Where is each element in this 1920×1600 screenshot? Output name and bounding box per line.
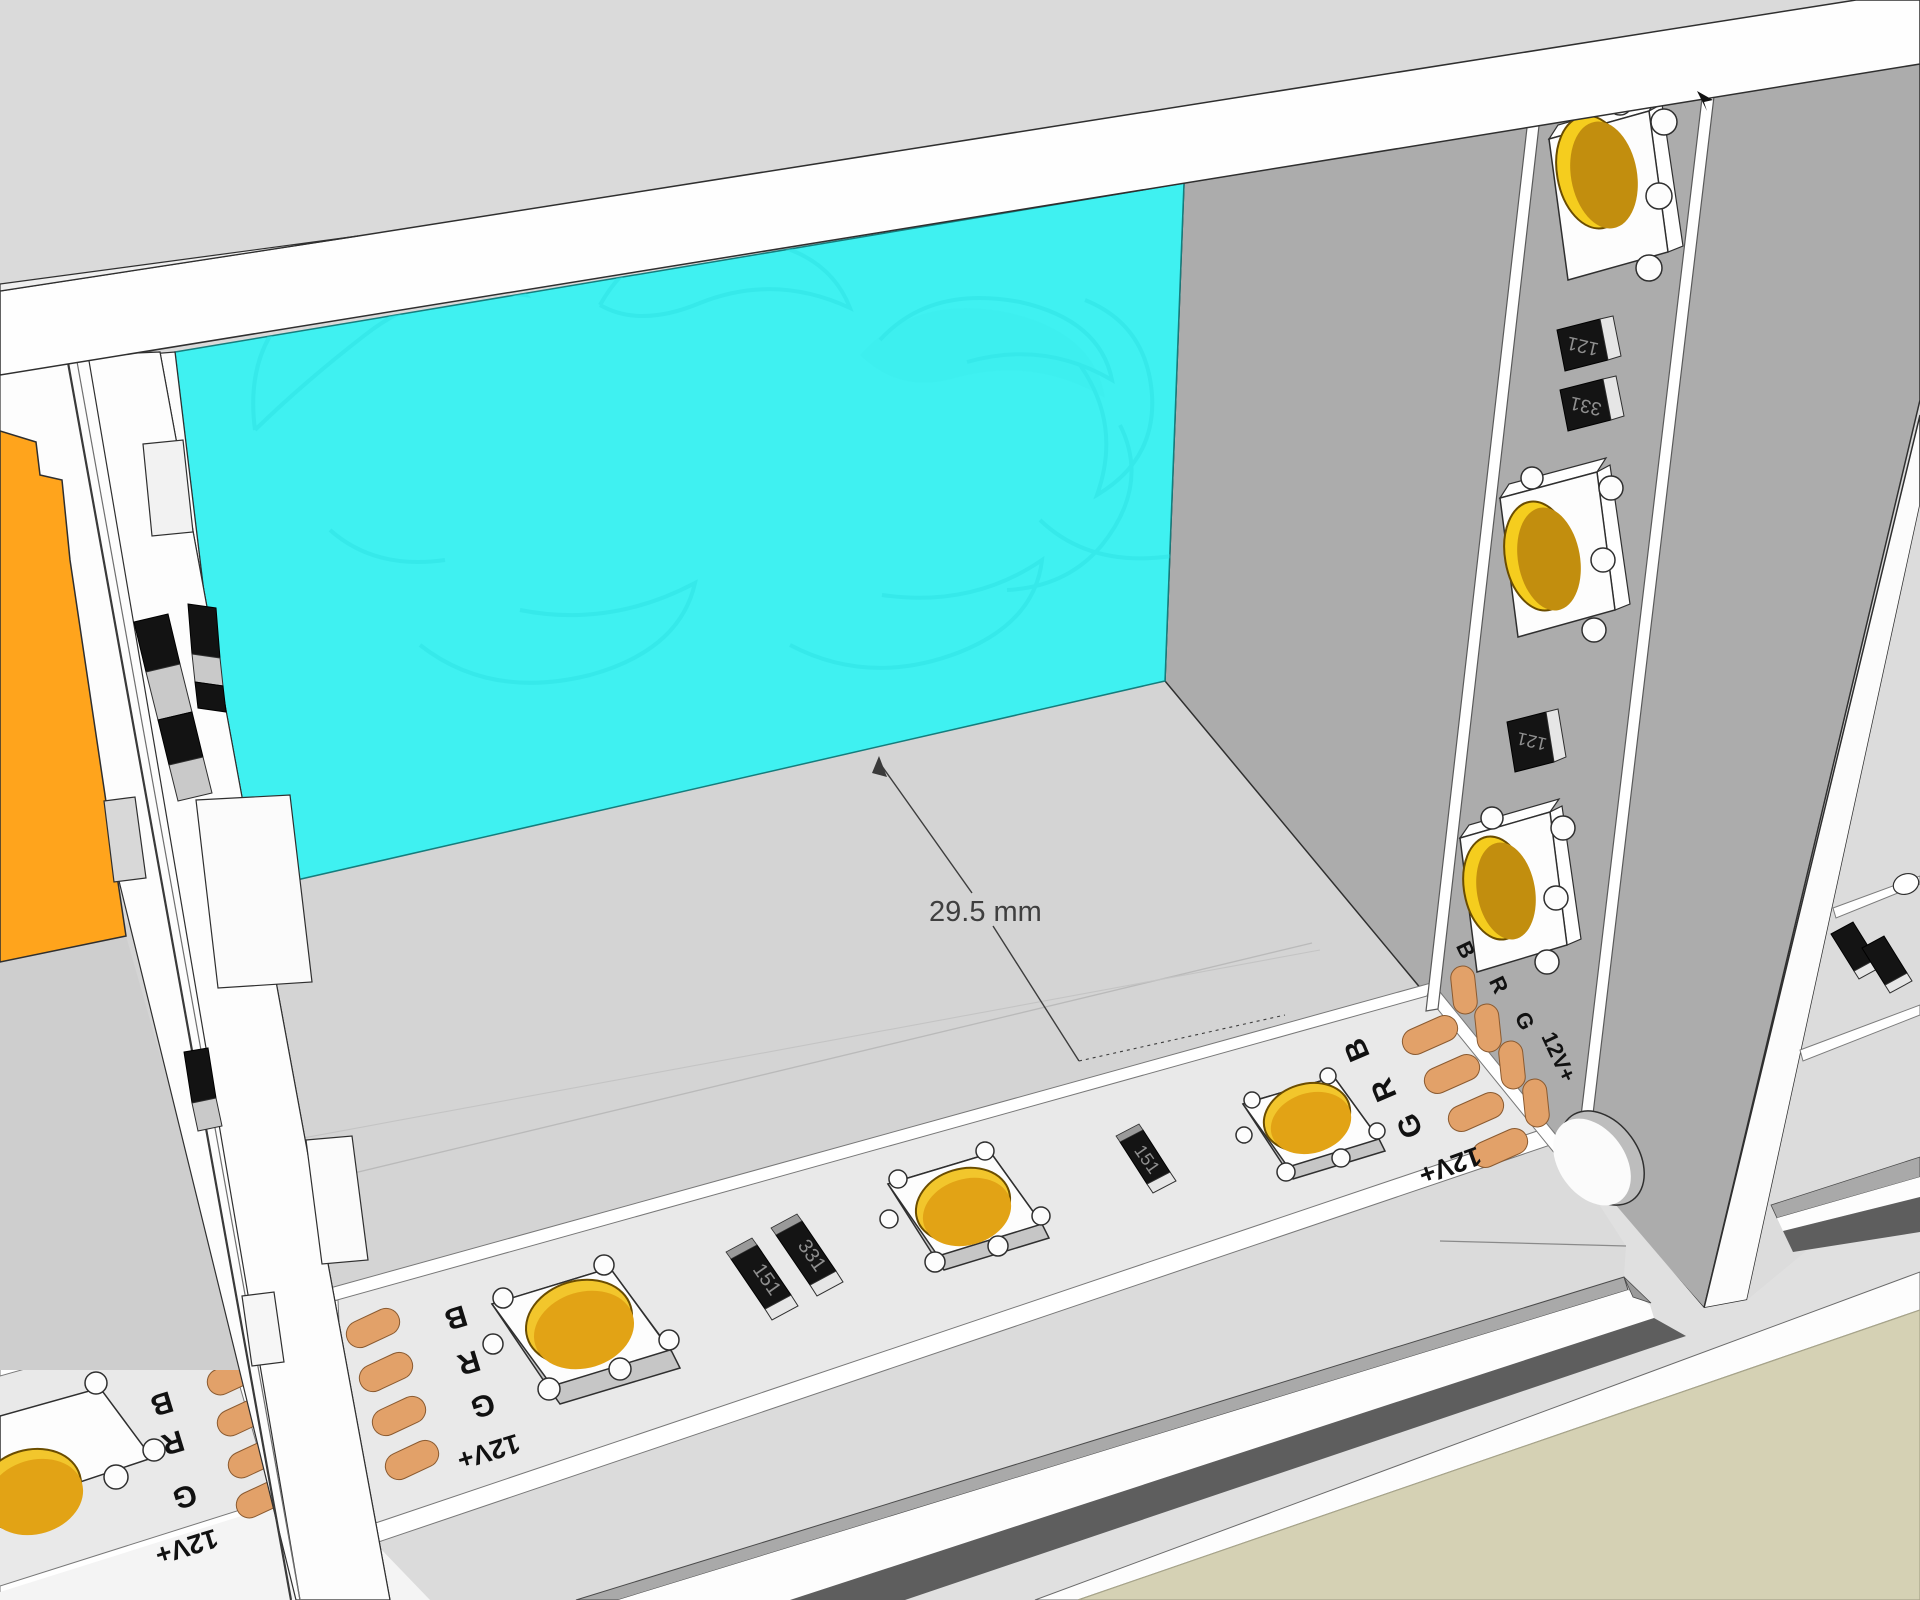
svg-text:29.5 mm: 29.5 mm	[929, 896, 1042, 928]
